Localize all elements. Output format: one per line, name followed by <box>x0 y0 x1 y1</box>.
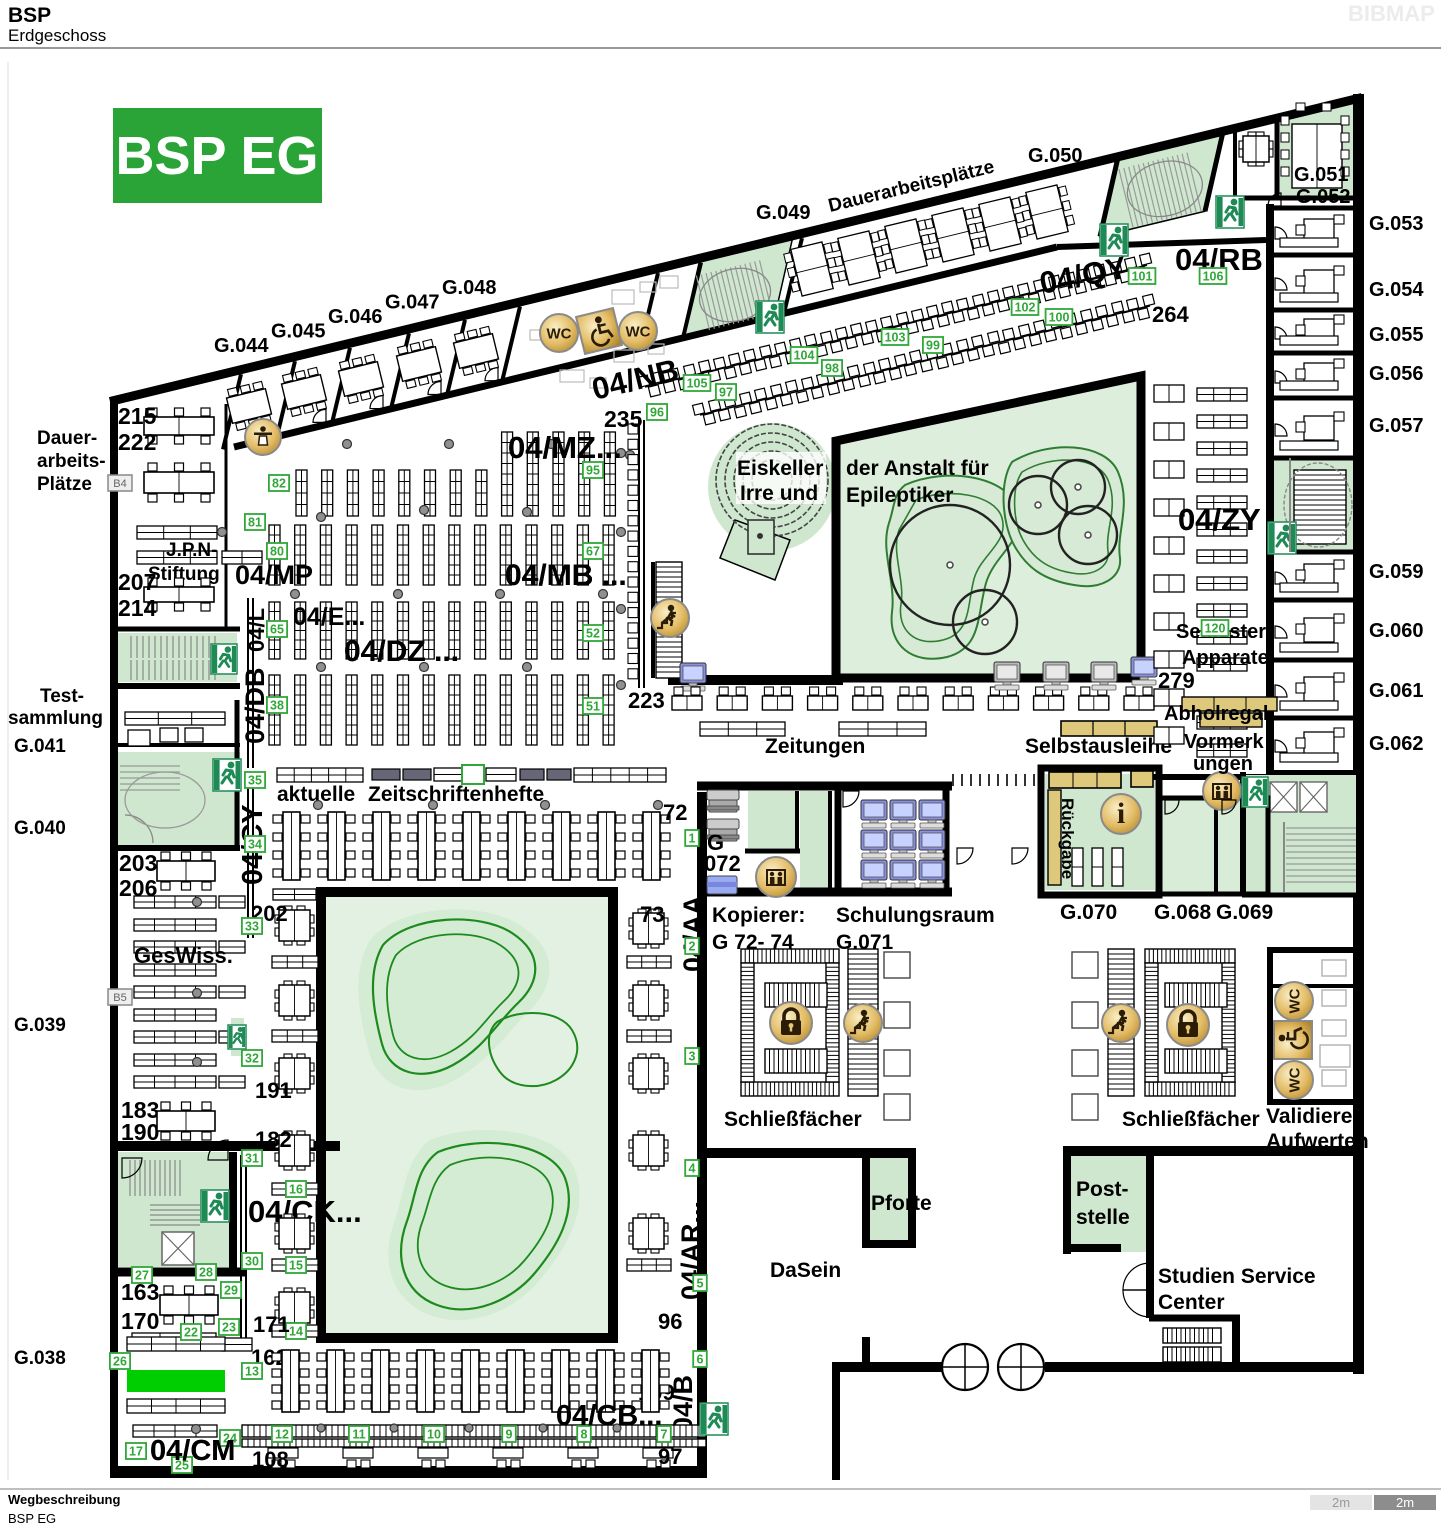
svg-text:28: 28 <box>199 1266 213 1280</box>
svg-text:279: 279 <box>1158 668 1195 693</box>
svg-text:11: 11 <box>352 1428 365 1442</box>
svg-text:04/CB...: 04/CB... <box>556 1400 662 1432</box>
svg-text:29: 29 <box>224 1284 238 1298</box>
svg-text:215: 215 <box>118 403 157 429</box>
svg-text:WC: WC <box>626 324 651 341</box>
svg-text:G.044: G.044 <box>214 335 269 357</box>
svg-text:G.059: G.059 <box>1369 561 1423 583</box>
svg-text:BSP: BSP <box>8 4 51 27</box>
svg-text:96: 96 <box>658 1309 682 1334</box>
svg-text:102: 102 <box>1015 301 1036 315</box>
svg-text:G 72- 74: G 72- 74 <box>712 931 794 954</box>
svg-text:072: 072 <box>704 851 741 876</box>
svg-text:G.070: G.070 <box>1060 901 1117 924</box>
svg-text:G.071: G.071 <box>836 931 894 954</box>
svg-text:Post-: Post- <box>1076 1178 1129 1201</box>
svg-text:04/DB: 04/DB <box>240 667 270 744</box>
svg-text:5: 5 <box>697 1277 704 1291</box>
svg-text:35: 35 <box>248 774 262 788</box>
svg-text:Abholregal: Abholregal <box>1164 703 1268 725</box>
svg-text:99: 99 <box>926 339 940 353</box>
svg-text:13: 13 <box>245 1365 259 1379</box>
svg-text:3: 3 <box>689 1050 696 1064</box>
svg-text:32: 32 <box>245 1052 259 1066</box>
svg-text:G.060: G.060 <box>1369 620 1423 642</box>
svg-text:Epileptiker: Epileptiker <box>846 484 953 507</box>
svg-text:Zeitschriftenhefte: Zeitschriftenhefte <box>368 783 544 806</box>
svg-text:G.056: G.056 <box>1369 363 1423 385</box>
svg-text:G.046: G.046 <box>328 306 382 328</box>
svg-text:04/MB ...: 04/MB ... <box>505 559 627 592</box>
svg-text:G.062: G.062 <box>1369 733 1423 755</box>
svg-text:222: 222 <box>118 429 156 455</box>
svg-text:G.040: G.040 <box>14 818 66 839</box>
svg-text:Vormerk: Vormerk <box>1184 731 1265 753</box>
svg-text:14: 14 <box>289 1325 303 1339</box>
svg-text:34: 34 <box>248 838 262 852</box>
svg-text:98: 98 <box>825 362 839 376</box>
svg-text:G.069: G.069 <box>1216 901 1273 924</box>
svg-text:Selbstausleihe: Selbstausleihe <box>1025 735 1172 758</box>
svg-text:104: 104 <box>794 349 815 363</box>
svg-text:G.050: G.050 <box>1028 145 1082 167</box>
svg-text:207: 207 <box>118 569 156 595</box>
svg-text:04/ZY: 04/ZY <box>1178 502 1261 537</box>
svg-text:04/MZ...: 04/MZ... <box>508 430 622 465</box>
svg-text:16: 16 <box>289 1183 303 1197</box>
svg-text:30: 30 <box>245 1255 259 1269</box>
svg-text:97: 97 <box>658 1444 682 1469</box>
svg-text:G.045: G.045 <box>271 321 325 343</box>
svg-text:Kopierer:: Kopierer: <box>712 904 805 927</box>
svg-text:G.051: G.051 <box>1294 164 1348 186</box>
svg-text:182: 182 <box>255 1127 292 1152</box>
svg-text:27: 27 <box>135 1269 149 1283</box>
svg-text:97: 97 <box>719 386 733 400</box>
svg-text:DaSein: DaSein <box>770 1259 841 1282</box>
svg-text:26: 26 <box>113 1355 127 1369</box>
svg-text:1: 1 <box>689 832 696 846</box>
svg-text:J.P.N-: J.P.N- <box>166 540 217 561</box>
svg-text:der Anstalt für: der Anstalt für <box>846 457 989 480</box>
svg-text:170: 170 <box>121 1308 159 1334</box>
svg-text:04/E...: 04/E... <box>293 603 365 631</box>
svg-text:2: 2 <box>689 940 696 954</box>
svg-text:stelle: stelle <box>1076 1206 1130 1229</box>
svg-text:264: 264 <box>1152 302 1189 327</box>
svg-text:Studien Service: Studien Service <box>1158 1265 1316 1288</box>
svg-text:G.047: G.047 <box>385 292 439 314</box>
svg-text:223: 223 <box>628 688 665 713</box>
svg-text:WC: WC <box>1287 1067 1304 1092</box>
svg-text:100: 100 <box>1049 311 1070 325</box>
svg-text:Schließfächer: Schließfächer <box>724 1108 862 1131</box>
svg-text:73: 73 <box>640 902 664 927</box>
svg-text:WC: WC <box>547 326 572 343</box>
svg-text:ungen: ungen <box>1193 753 1253 775</box>
svg-text:04/L: 04/L <box>244 608 269 652</box>
svg-text:Center: Center <box>1158 1291 1225 1314</box>
svg-text:G.039: G.039 <box>14 1015 66 1036</box>
svg-text:4: 4 <box>689 1162 696 1176</box>
svg-text:G.061: G.061 <box>1369 680 1423 702</box>
svg-text:10: 10 <box>427 1428 441 1442</box>
svg-text:G.038: G.038 <box>14 1348 66 1369</box>
svg-text:Irre und: Irre und <box>740 482 818 505</box>
svg-text:80: 80 <box>270 545 284 559</box>
svg-text:04/AA...: 04/AA... <box>678 873 708 972</box>
svg-text:G.057: G.057 <box>1369 415 1423 437</box>
svg-text:103: 103 <box>885 331 906 345</box>
svg-text:38: 38 <box>270 699 284 713</box>
svg-text:Pforte: Pforte <box>871 1192 932 1215</box>
svg-text:51: 51 <box>586 700 600 714</box>
svg-text:Eiskeller: Eiskeller <box>737 457 823 480</box>
svg-text:31: 31 <box>245 1152 259 1166</box>
svg-text:Dauer-: Dauer- <box>37 428 97 449</box>
svg-text:04/MP: 04/MP <box>235 560 313 590</box>
svg-text:2m: 2m <box>1332 1495 1350 1510</box>
svg-text:82: 82 <box>272 477 286 491</box>
svg-text:214: 214 <box>118 595 157 621</box>
svg-text:G.041: G.041 <box>14 736 66 757</box>
svg-text:15: 15 <box>289 1259 303 1273</box>
svg-text:G.054: G.054 <box>1369 279 1424 301</box>
svg-text:191: 191 <box>255 1078 292 1103</box>
svg-text:17: 17 <box>129 1445 143 1459</box>
svg-text:96: 96 <box>650 406 664 420</box>
svg-text:G.049: G.049 <box>756 202 810 224</box>
svg-text:04/DZ ...: 04/DZ ... <box>344 635 459 668</box>
svg-text:171: 171 <box>253 1312 290 1337</box>
svg-text:190: 190 <box>121 1119 159 1145</box>
svg-text:22: 22 <box>184 1326 198 1340</box>
svg-text:33: 33 <box>245 920 259 934</box>
svg-text:BSP EG: BSP EG <box>8 1511 56 1526</box>
svg-text:Validieren: Validieren <box>1266 1105 1365 1128</box>
svg-text:Test-: Test- <box>40 686 84 707</box>
svg-text:Erdgeschoss: Erdgeschoss <box>8 26 106 45</box>
svg-text:65: 65 <box>270 623 284 637</box>
svg-text:GesWiss.: GesWiss. <box>134 943 233 968</box>
svg-text:WC: WC <box>1287 988 1304 1013</box>
svg-text:106: 106 <box>1203 270 1224 284</box>
svg-text:BSP EG: BSP EG <box>115 126 318 186</box>
svg-text:95: 95 <box>586 464 600 478</box>
svg-text:Wegbeschreibung: Wegbeschreibung <box>8 1492 121 1507</box>
svg-text:120: 120 <box>1205 622 1226 636</box>
svg-text:12: 12 <box>275 1428 289 1442</box>
svg-text:Aufwerten: Aufwerten <box>1266 1130 1369 1153</box>
svg-text:Zeitungen: Zeitungen <box>765 735 865 758</box>
svg-text:81: 81 <box>248 516 262 530</box>
svg-text:2m: 2m <box>1396 1495 1414 1510</box>
svg-text:G.055: G.055 <box>1369 324 1423 346</box>
svg-text:i: i <box>1117 797 1125 830</box>
svg-text:52: 52 <box>586 627 600 641</box>
svg-text:67: 67 <box>586 545 600 559</box>
svg-text:G.048: G.048 <box>442 277 496 299</box>
svg-text:108: 108 <box>252 1447 289 1472</box>
svg-text:Plätze: Plätze <box>37 474 92 495</box>
svg-text:9: 9 <box>506 1428 513 1442</box>
svg-text:105: 105 <box>687 377 708 391</box>
svg-text:Schulungsraum: Schulungsraum <box>836 904 995 927</box>
svg-text:B5: B5 <box>113 992 126 1004</box>
svg-text:235: 235 <box>604 406 643 432</box>
svg-text:6: 6 <box>697 1353 704 1367</box>
svg-text:203: 203 <box>119 850 157 876</box>
svg-text:B4: B4 <box>113 478 126 490</box>
svg-text:G.068: G.068 <box>1154 901 1212 924</box>
svg-text:101: 101 <box>1132 270 1153 284</box>
svg-text:04/CM: 04/CM <box>150 1435 235 1467</box>
svg-text:BIBMAP: BIBMAP <box>1348 1 1435 26</box>
svg-text:72: 72 <box>663 800 687 825</box>
svg-text:Apparate: Apparate <box>1182 647 1269 669</box>
svg-text:23: 23 <box>222 1321 236 1335</box>
svg-text:sammlung: sammlung <box>8 708 103 729</box>
svg-text:arbeits-: arbeits- <box>37 451 106 472</box>
svg-text:G.052: G.052 <box>1296 186 1350 208</box>
svg-text:G.053: G.053 <box>1369 213 1423 235</box>
svg-text:Schließfächer: Schließfächer <box>1122 1108 1260 1131</box>
